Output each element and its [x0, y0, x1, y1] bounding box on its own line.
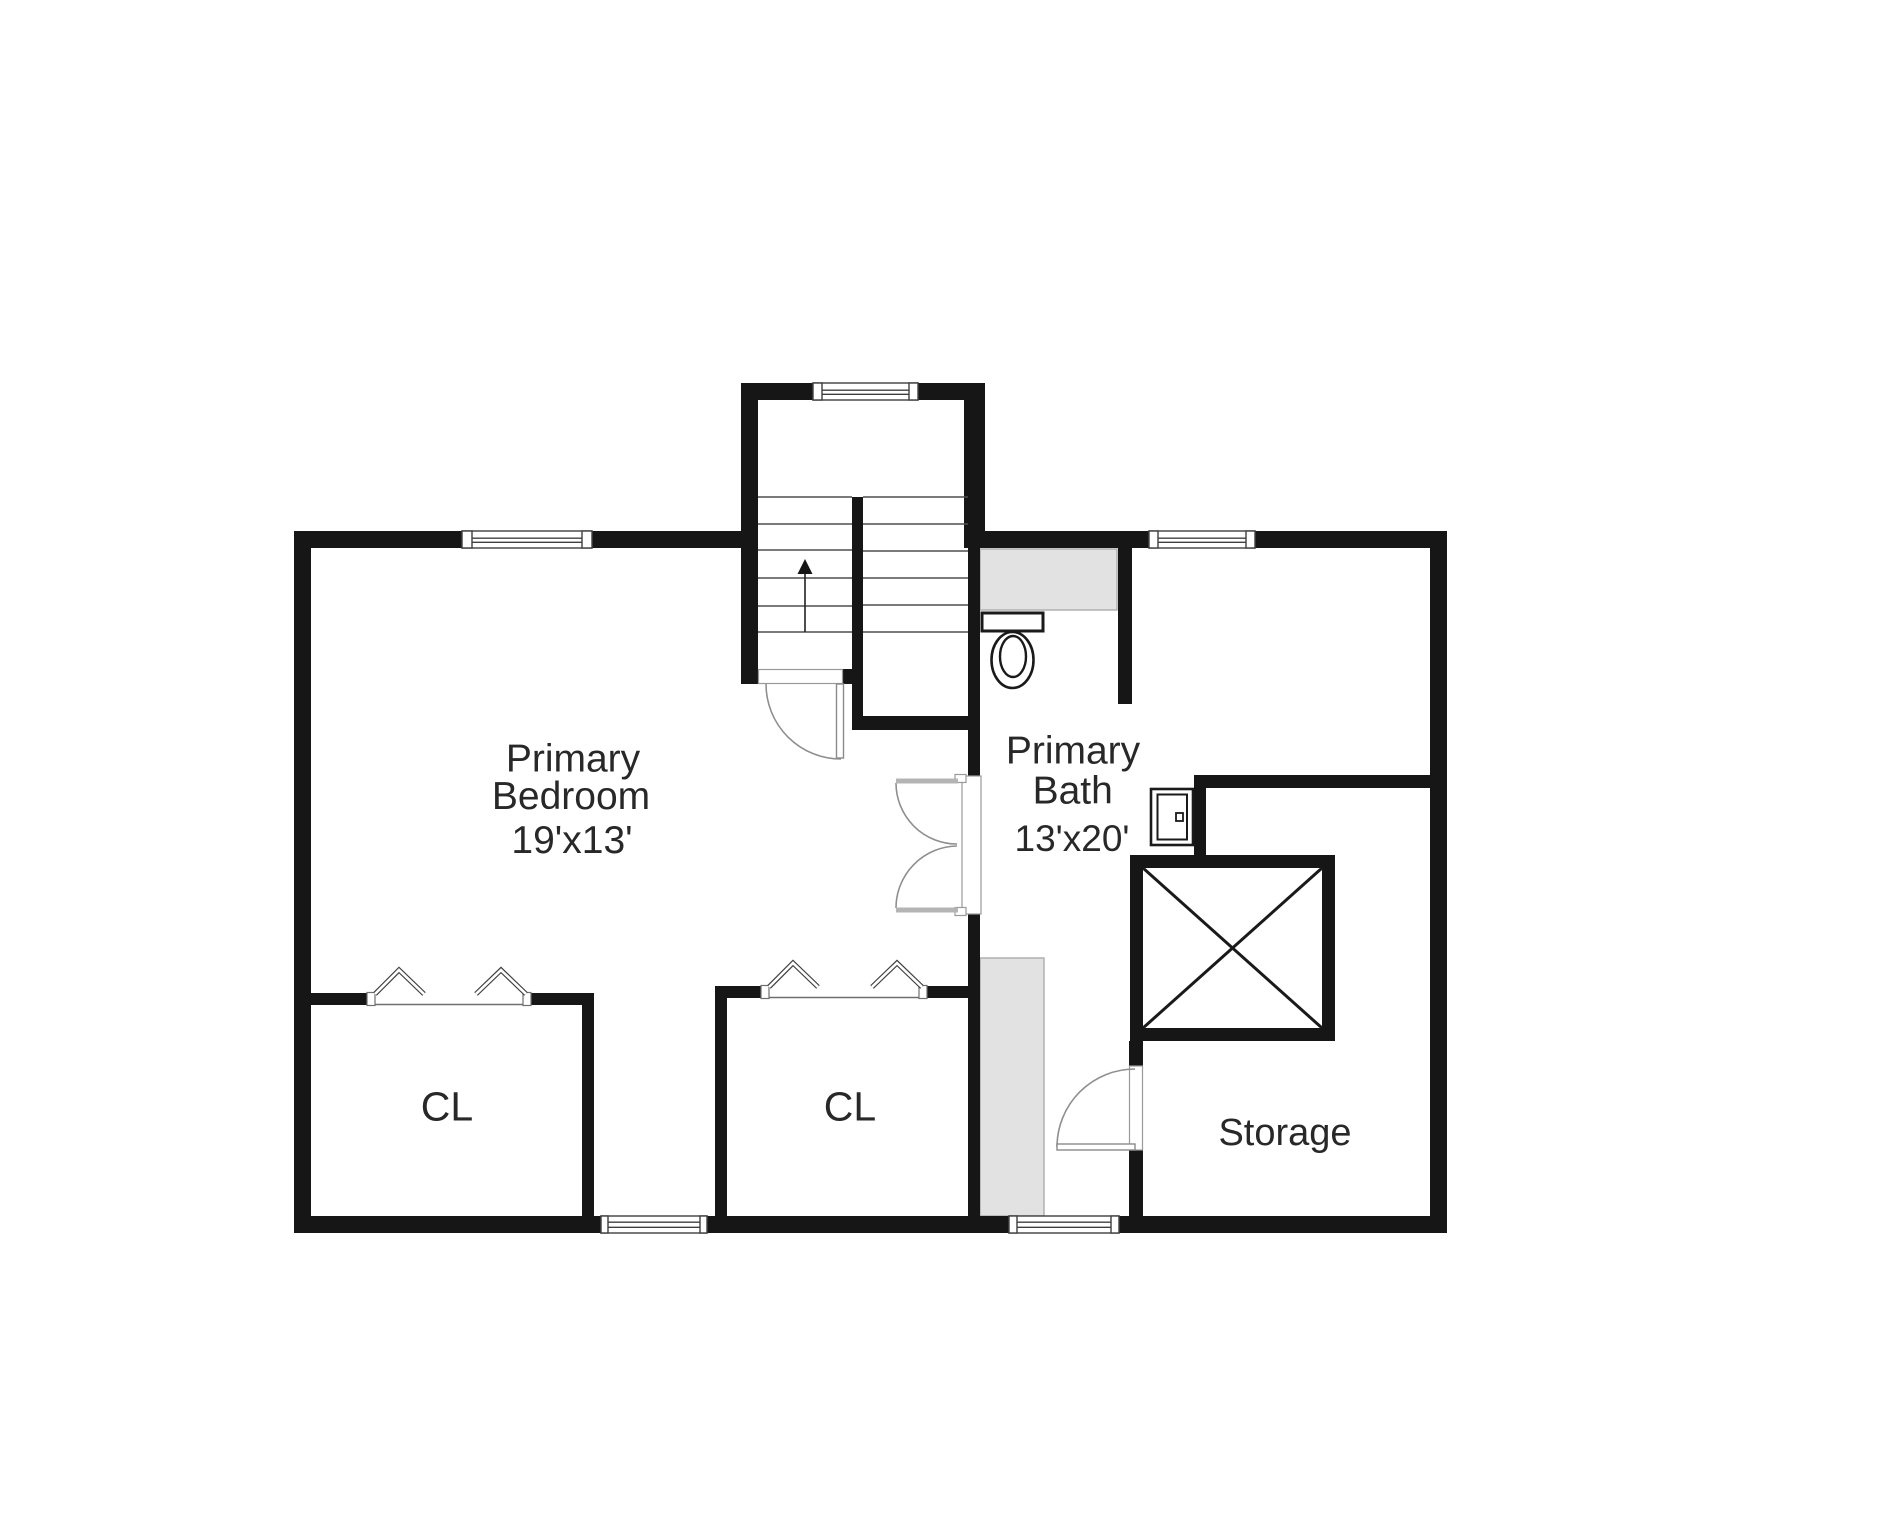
- svg-text:19'x13': 19'x13': [511, 819, 632, 862]
- svg-text:Primary: Primary: [506, 737, 641, 780]
- svg-text:Storage: Storage: [1218, 1112, 1351, 1154]
- svg-text:CL: CL: [421, 1084, 473, 1130]
- svg-text:Bedroom: Bedroom: [492, 775, 650, 818]
- svg-text:Bath: Bath: [1033, 770, 1113, 813]
- svg-text:13'x20': 13'x20': [1015, 818, 1130, 859]
- svg-text:CL: CL: [824, 1084, 876, 1130]
- svg-text:Primary: Primary: [1006, 730, 1141, 773]
